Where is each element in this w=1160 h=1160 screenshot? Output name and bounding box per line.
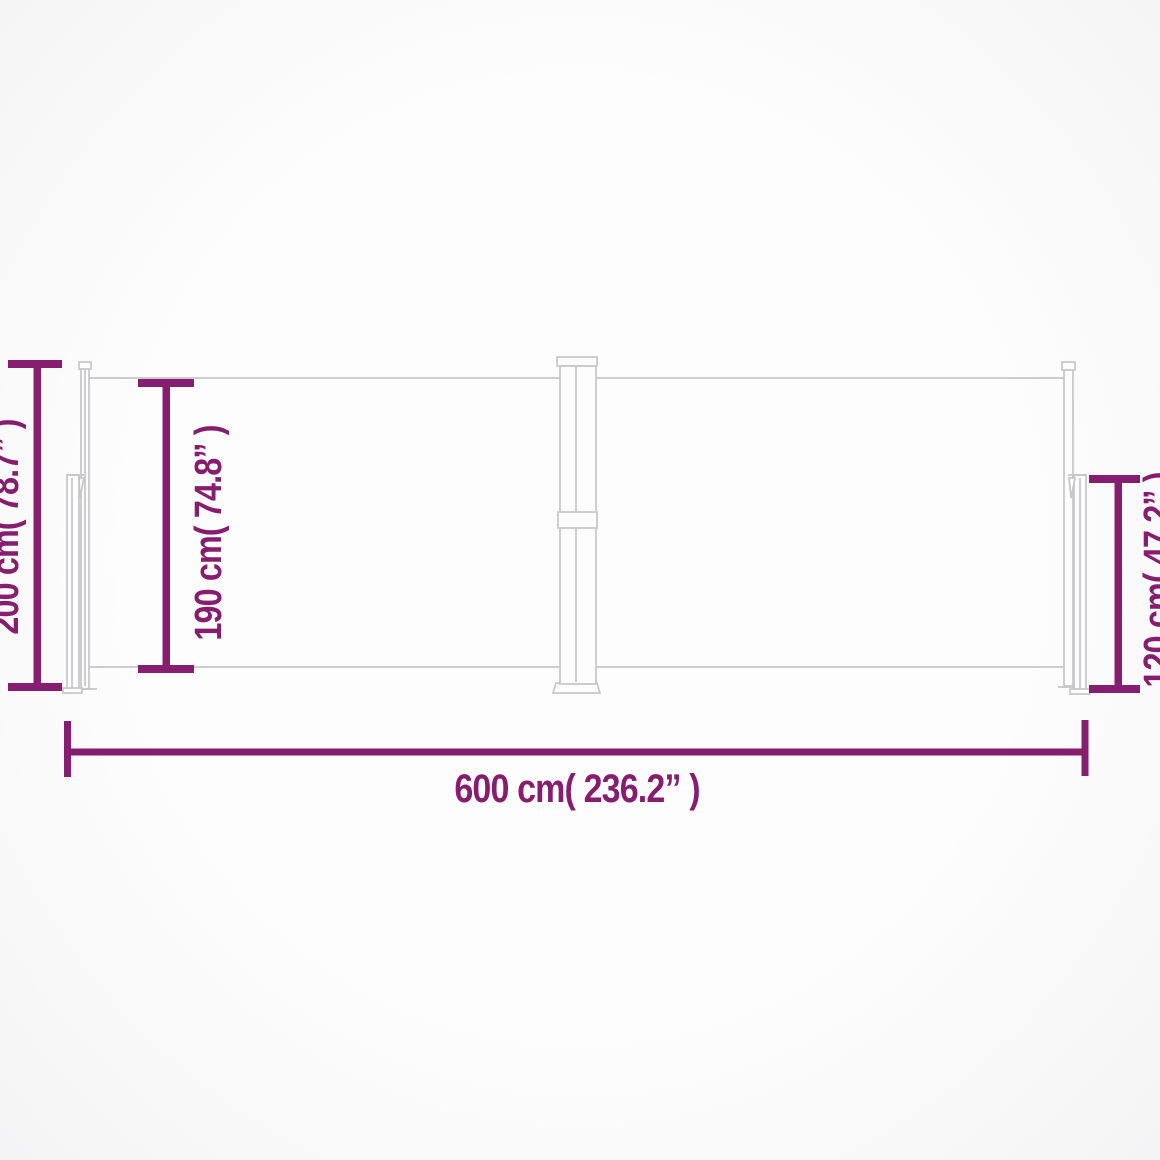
- dimension-end-height-line: [1115, 478, 1123, 689]
- dimension-total-width-right-tick: [1082, 720, 1089, 776]
- dimension-total-height-top-cap: [8, 360, 62, 368]
- dimension-fabric-height-line: [163, 384, 171, 670]
- diagram-drawing: [0, 0, 1160, 1160]
- left-end-pole-base: [63, 688, 82, 693]
- right-end-pole-base: [1070, 689, 1090, 694]
- right-cassette-cap: [1062, 362, 1075, 370]
- left-end-pole-body: [67, 475, 79, 690]
- total-height-label: 200 cm( 78.7” ): [0, 419, 25, 634]
- total-width-label: 600 cm( 236.2” ): [454, 769, 699, 809]
- end-height-label: 120 cm( 47.2” ): [1139, 472, 1160, 687]
- fabric-height-label: 190 cm( 74.8” ): [190, 425, 228, 640]
- dimension-end-height: [1089, 475, 1140, 693]
- awning-dimension-diagram: 200 cm( 78.7” ) 190 cm( 74.8” ) 120 cm( …: [0, 0, 1160, 1160]
- dimension-total-height-bottom-cap: [8, 683, 62, 691]
- left-cassette-cap: [79, 362, 91, 369]
- center-post: [553, 357, 600, 693]
- center-post-cap: [557, 357, 597, 366]
- dimension-total-width-left-tick: [64, 721, 71, 777]
- right-cassette-body: [1064, 369, 1073, 686]
- center-post-collar: [558, 512, 597, 528]
- dimension-fabric-height-bottom-cap: [138, 665, 194, 673]
- dimension-end-height-bottom-cap: [1089, 685, 1140, 693]
- dimension-total-height-line: [34, 363, 42, 688]
- dimension-fabric-height-top-cap: [138, 379, 194, 387]
- dimension-total-width-line: [67, 749, 1085, 756]
- dimension-fabric-height: [138, 379, 194, 673]
- dimension-end-height-top-cap: [1089, 475, 1140, 483]
